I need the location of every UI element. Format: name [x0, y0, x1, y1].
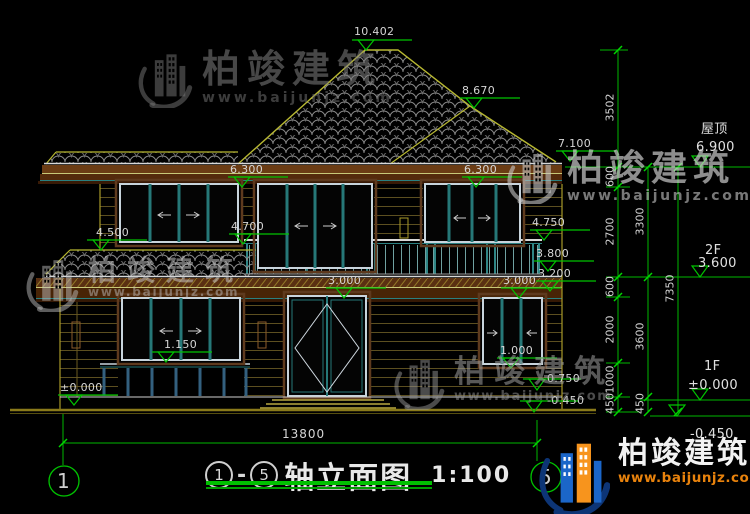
- level-slab-top: 3.800: [536, 248, 569, 259]
- axis-bubble-5-label: 5: [539, 467, 552, 487]
- level-sill-right: 1.000: [500, 345, 533, 356]
- level-pent-eave: 4.500: [96, 227, 129, 238]
- level-rail-top: 4.700: [231, 221, 264, 232]
- level-below-grade: -0.450: [547, 395, 584, 406]
- title-underline-thick: [206, 481, 432, 485]
- dim-450b: 450: [635, 380, 646, 428]
- window-2f-right: [421, 180, 524, 246]
- level-sill-left: 1.150: [164, 339, 197, 350]
- dim-7350: 7350: [665, 265, 676, 313]
- axis-bubble-1-label: 1: [57, 471, 70, 491]
- main-roof: [46, 50, 556, 164]
- level-slab-bottom: 3.200: [538, 268, 571, 279]
- dim-3300: 3300: [635, 198, 646, 246]
- dim-3502: 3502: [605, 84, 616, 132]
- value-roof: 6.900: [696, 141, 735, 154]
- drawing-title: 1 - 5 轴立面图 1:100: [205, 453, 511, 497]
- title-scale: 1:100: [431, 463, 511, 488]
- window-1f-left: [118, 294, 244, 364]
- value-1f: ±0.000: [688, 379, 738, 392]
- entry-door: [284, 292, 370, 398]
- window-2f-balcony-door: [254, 180, 376, 272]
- label-roof: 屋顶: [701, 123, 728, 136]
- level-win1-head-l: 3.000: [328, 275, 361, 286]
- elevation-drawing: [0, 0, 750, 514]
- value-2f: 3.600: [698, 257, 737, 270]
- label-1f: 1F: [704, 360, 720, 373]
- pent-roof: [44, 250, 256, 276]
- level-eave-right: 7.100: [558, 138, 591, 149]
- level-porch: 0.750: [547, 373, 580, 384]
- title-underline-thin: [206, 487, 432, 489]
- entry-steps: [260, 400, 396, 408]
- dim-2000: 2000: [605, 306, 616, 354]
- porch-parapet: [100, 364, 250, 396]
- dim-600b: 600: [605, 263, 616, 311]
- dim-450a: 450: [605, 380, 616, 428]
- level-win1-head-r: 3.000: [503, 275, 536, 286]
- level-hip-peak: 8.670: [462, 85, 495, 96]
- title-text: 轴立面图: [284, 453, 412, 497]
- dim-600a: 600: [605, 153, 616, 201]
- level-rail-top-r: 4.750: [532, 217, 565, 228]
- value-grade: -0.450: [690, 428, 734, 441]
- dim-13800: 13800: [282, 427, 325, 441]
- level-win2-head-l: 6.300: [230, 164, 263, 175]
- window-2f-left: [116, 180, 242, 246]
- cad-elevation-canvas: 10.402 8.670 7.100 6.300 6.300 4.500 4.7…: [0, 0, 750, 514]
- dim-2700: 2700: [605, 208, 616, 256]
- level-floor: ±0.000: [60, 382, 103, 393]
- dim-3600: 3600: [635, 313, 646, 361]
- level-win2-head-r: 6.300: [464, 164, 497, 175]
- level-ridge: 10.402: [354, 26, 394, 37]
